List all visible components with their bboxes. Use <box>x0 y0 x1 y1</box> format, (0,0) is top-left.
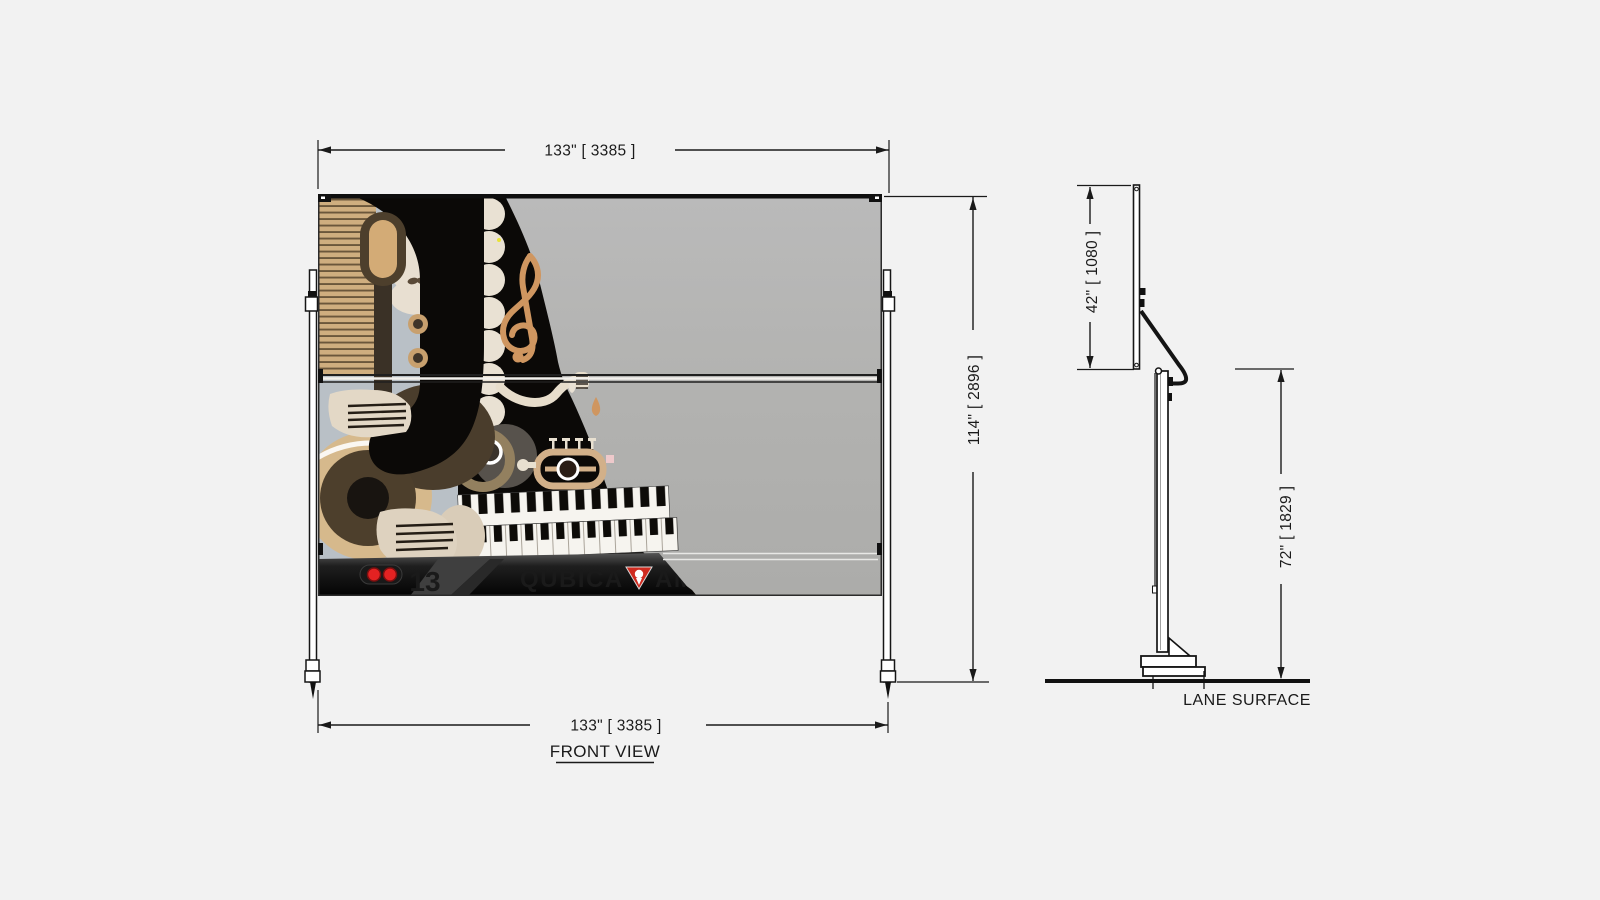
edge-hinge <box>318 543 323 555</box>
side-view: LANE SURFACE 42" [ 1080 ] 72" [ 1829 ] <box>1045 185 1311 709</box>
lane-surface-label: LANE SURFACE <box>1183 692 1311 709</box>
indicator-dot <box>368 568 381 581</box>
dimension-stand-height: 72" [ 1829 ] <box>1235 369 1295 679</box>
front-view: 13 QUBICA AM <box>304 140 989 763</box>
dimension-top-width: 133" [ 3385 ] <box>318 140 889 193</box>
indicator-dot <box>384 568 397 581</box>
edge-hinge <box>318 369 323 383</box>
right-leg-foot <box>882 660 895 671</box>
dimension-panel-height: 42" [ 1080 ] <box>1077 186 1134 370</box>
lane-number-text: 13 <box>409 566 440 597</box>
stand-post <box>1153 368 1174 652</box>
base-gusset <box>1169 638 1190 656</box>
dim-top-width-label: 133" [ 3385 ] <box>544 143 635 160</box>
left-leg-foot <box>306 660 319 671</box>
piano-keyboard <box>457 485 679 559</box>
left-leg-tip <box>310 682 316 699</box>
dim-panel-height-label: 42" [ 1080 ] <box>1084 231 1101 313</box>
dimension-overall-height: 114" [ 2896 ] <box>884 197 989 683</box>
dim-overall-height-label: 114" [ 2896 ] <box>966 355 983 445</box>
edge-hinge <box>877 543 882 555</box>
right-leg-bracket <box>883 297 895 311</box>
side-panel <box>1134 185 1146 369</box>
edge-hinge <box>877 369 882 383</box>
brand-text-qubica: QUBICA <box>520 566 624 593</box>
dim-stand-height-label: 72" [ 1829 ] <box>1278 486 1295 568</box>
right-leg <box>881 270 896 699</box>
front-view-label: FRONT VIEW <box>550 742 660 761</box>
masking-unit-drawing: 13 QUBICA AM <box>0 0 1600 900</box>
left-leg-bracket <box>306 297 318 311</box>
masking-panel: 13 QUBICA AM <box>304 186 882 597</box>
right-leg-tip <box>885 682 891 699</box>
dimension-bottom-width: 133" [ 3385 ] <box>318 690 888 735</box>
technical-drawing-canvas: 13 QUBICA AM <box>0 0 1600 900</box>
logo-bar: 13 QUBICA AM <box>318 553 695 597</box>
dim-bottom-width-label: 133" [ 3385 ] <box>570 718 661 735</box>
left-leg <box>305 270 320 699</box>
